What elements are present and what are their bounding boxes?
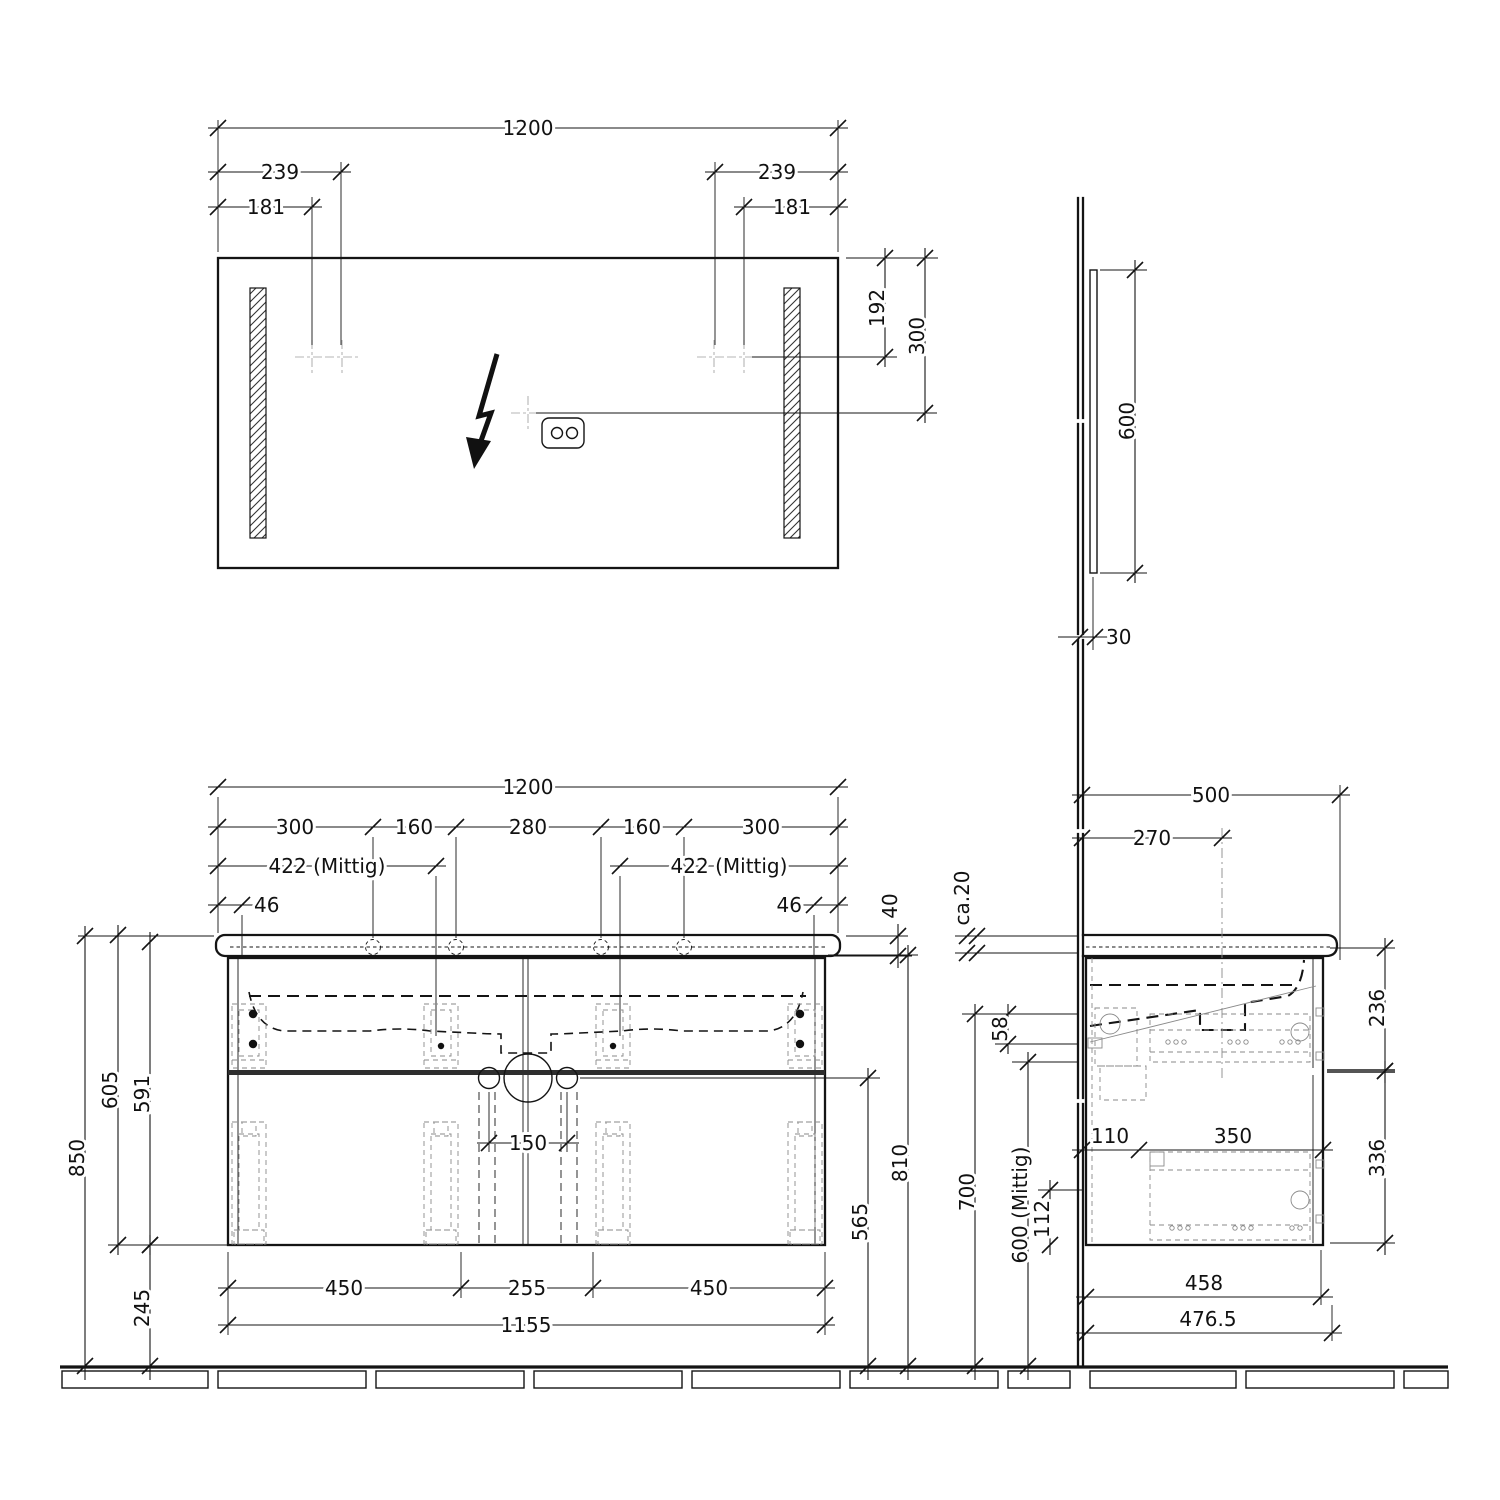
dim-label: 30 bbox=[1106, 625, 1131, 649]
basin-side-outline-dashed bbox=[1090, 960, 1304, 1030]
dim-245: 245 bbox=[130, 1235, 158, 1380]
vanity-front-extension-lines bbox=[78, 797, 918, 1335]
dim-drain-150: 150 bbox=[477, 1131, 579, 1155]
dim-476: 476.5 bbox=[1076, 1307, 1342, 1341]
drawer-slide-hardware-upper bbox=[232, 1004, 822, 1068]
dim-label: 422 (Mittig) bbox=[671, 854, 788, 878]
floor-line bbox=[60, 1367, 1448, 1388]
dim-label: 1200 bbox=[503, 775, 554, 799]
dim-270: 270 bbox=[1072, 826, 1232, 850]
dim-label: 565 bbox=[848, 1203, 872, 1241]
dim-565: 565 bbox=[848, 1068, 876, 1380]
dim-depth-500: 500 bbox=[1072, 783, 1350, 807]
mounting-crosshair-marks bbox=[295, 340, 761, 430]
dim-label: 300 bbox=[276, 815, 314, 839]
dim-label: 300 bbox=[742, 815, 780, 839]
dim-label: 591 bbox=[130, 1075, 154, 1113]
dim-850: 850 bbox=[65, 926, 93, 1380]
dim-label: 700 bbox=[955, 1173, 979, 1211]
dim-label: 46 bbox=[254, 893, 279, 917]
floor-tiles bbox=[62, 1371, 1448, 1388]
vanity-side-view: 500 270 ca.20 58 700 600 (Mittig bbox=[950, 783, 1395, 1380]
dim-mirror-192: 192 bbox=[865, 248, 893, 367]
lightning-bolt-icon bbox=[466, 354, 497, 469]
dim-label: 150 bbox=[509, 1131, 547, 1155]
mirror-side-view: 600 30 bbox=[1058, 260, 1147, 650]
dim-label: 500 bbox=[1192, 783, 1230, 807]
dim-810: 810 bbox=[888, 945, 916, 1380]
dim-336: 336 bbox=[1365, 1061, 1393, 1255]
power-socket-icon bbox=[542, 418, 584, 448]
basin-outline-dashed bbox=[249, 992, 803, 1053]
dim-label: 605 bbox=[98, 1071, 122, 1109]
dim-label: 255 bbox=[508, 1276, 546, 1300]
dim-label: 110 bbox=[1091, 1124, 1129, 1148]
dim-236: 236 bbox=[1365, 938, 1393, 1083]
dim-label: 336 bbox=[1365, 1139, 1389, 1177]
dim-label: 476.5 bbox=[1179, 1307, 1236, 1331]
technical-drawing-page: 1200 239 181 239 181 192 bbox=[0, 0, 1500, 1500]
dim-label: 58 bbox=[988, 1016, 1012, 1041]
dim-bottom-row: 450 255 450 bbox=[218, 1276, 835, 1300]
dim-mittig-right: 422 (Mittig) bbox=[610, 854, 848, 878]
dim-label: 458 bbox=[1185, 1271, 1223, 1295]
dim-46-right: 46 bbox=[777, 893, 848, 917]
dim-58: 58 bbox=[988, 1004, 1016, 1054]
basin-diagonal-line bbox=[1090, 986, 1316, 1042]
dim-mirror-181-left: 181 bbox=[208, 195, 322, 219]
dim-mirror-239-left: 239 bbox=[208, 160, 351, 184]
dim-vanity-segments: 300 160 280 160 300 bbox=[208, 815, 848, 839]
hinge-dots bbox=[249, 1010, 804, 1049]
dim-mirror-239-right: 239 bbox=[705, 160, 848, 184]
dim-label: 350 bbox=[1214, 1124, 1252, 1148]
dim-label: 245 bbox=[130, 1289, 154, 1327]
dim-label: 181 bbox=[247, 195, 285, 219]
dim-label: 850 bbox=[65, 1139, 89, 1177]
countertop-side bbox=[1083, 935, 1337, 956]
dim-label: 160 bbox=[623, 815, 661, 839]
dim-countertop-thickness: 40 bbox=[878, 893, 906, 968]
dim-mirror-height: 600 bbox=[1115, 260, 1143, 583]
dim-label: 239 bbox=[261, 160, 299, 184]
dim-mirror-width: 1200 bbox=[208, 116, 848, 140]
dim-1155: 1155 bbox=[218, 1313, 835, 1337]
countertop-front bbox=[216, 935, 840, 956]
dim-label: 280 bbox=[509, 815, 547, 839]
dim-label: 40 bbox=[878, 893, 902, 918]
dim-label: 1155 bbox=[501, 1313, 552, 1337]
dim-label: 422 (Mittig) bbox=[269, 854, 386, 878]
dim-label: 300 bbox=[905, 317, 929, 355]
dim-mirror-300: 300 bbox=[905, 248, 933, 423]
dim-label: 239 bbox=[758, 160, 796, 184]
dim-label: 192 bbox=[865, 289, 889, 327]
dim-ca20: ca.20 bbox=[950, 870, 985, 961]
mirror-side-extension-lines bbox=[1093, 270, 1147, 650]
dim-label: 450 bbox=[690, 1276, 728, 1300]
dim-label: 450 bbox=[325, 1276, 363, 1300]
vanity-mirror-installation-drawing: 1200 239 181 239 181 192 bbox=[0, 0, 1500, 1500]
wall-line bbox=[1078, 198, 1083, 1366]
mirror-side-profile bbox=[1090, 270, 1097, 573]
mirror-front-view: 1200 239 181 239 181 192 bbox=[208, 116, 938, 568]
dim-700: 700 bbox=[955, 1004, 983, 1380]
dim-112: 112 bbox=[1030, 1180, 1058, 1255]
dim-mirror-depth: 30 bbox=[1058, 625, 1131, 649]
drawer-separator bbox=[228, 1070, 825, 1075]
dim-label: 810 bbox=[888, 1144, 912, 1182]
dim-label: 236 bbox=[1365, 989, 1389, 1027]
dim-mirror-181-right: 181 bbox=[734, 195, 848, 219]
dim-label: 112 bbox=[1030, 1200, 1054, 1238]
dim-label: 160 bbox=[395, 815, 433, 839]
dim-591: 591 bbox=[130, 932, 158, 1255]
dim-vanity-width: 1200 bbox=[208, 775, 848, 799]
dim-label: 600 bbox=[1115, 402, 1139, 440]
dim-label: 181 bbox=[773, 195, 811, 219]
cabinet-side-outline bbox=[1086, 958, 1323, 1245]
dim-label: 1200 bbox=[503, 116, 554, 140]
dim-110-350: 110 350 bbox=[1072, 1124, 1333, 1158]
mirror-extension-lines bbox=[218, 120, 938, 413]
dim-label: 46 bbox=[777, 893, 802, 917]
dim-605: 605 bbox=[98, 925, 126, 1255]
vanity-front-view: 1200 300 160 280 160 300 422 (Mittig) 42… bbox=[65, 775, 918, 1380]
led-strip-left bbox=[250, 288, 266, 538]
dim-46-left: 46 bbox=[208, 893, 279, 917]
dim-label: 270 bbox=[1133, 826, 1171, 850]
dim-mittig-left: 422 (Mittig) bbox=[208, 854, 446, 878]
dim-458: 458 bbox=[1076, 1271, 1333, 1305]
dim-label: ca.20 bbox=[950, 870, 974, 925]
dim-label: 600 (Mittig) bbox=[1008, 1147, 1032, 1264]
